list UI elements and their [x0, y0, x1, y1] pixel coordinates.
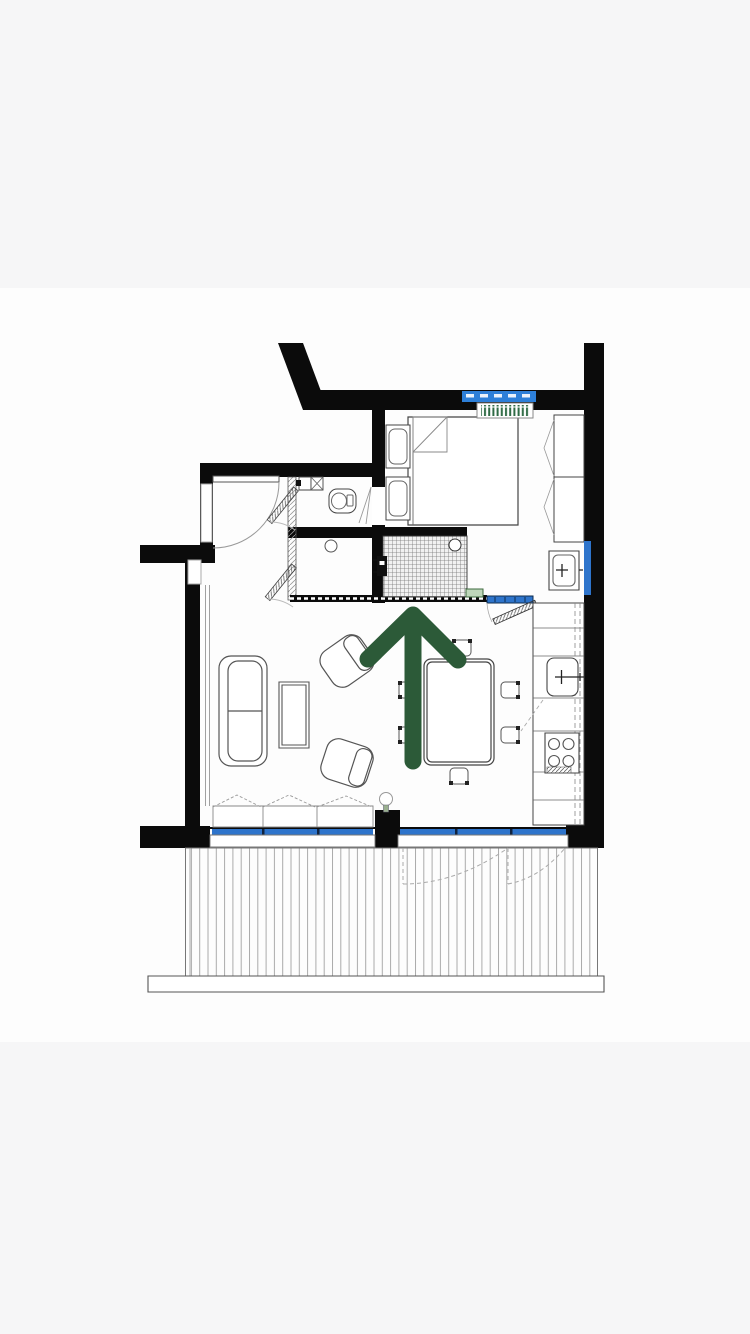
balcony-rim — [148, 976, 604, 992]
dimension-bar — [462, 391, 536, 402]
screenshot-root — [0, 0, 750, 1334]
nightstand-2 — [386, 477, 410, 520]
wall-corner-br — [566, 822, 604, 848]
floor-drain — [325, 540, 337, 552]
wc-door-opening — [372, 487, 385, 525]
wall-wc-divider — [288, 527, 385, 538]
coffee-table — [279, 682, 309, 748]
oven-handle — [547, 767, 571, 773]
shower-drain — [449, 539, 461, 551]
floor-plan-svg — [0, 0, 750, 1334]
bed — [408, 417, 518, 525]
nightstand-1 — [386, 425, 410, 468]
window-left — [212, 829, 373, 835]
wall-niche-1 — [201, 484, 212, 542]
window-right — [400, 829, 566, 835]
kitchen-counter — [533, 603, 584, 825]
wall-bed-tile — [385, 527, 467, 536]
wall-hall-top — [205, 463, 385, 477]
dining-chair — [501, 726, 520, 744]
wall-top — [310, 390, 604, 410]
wall-bottom-edge-right — [398, 827, 568, 829]
dining-table — [424, 659, 494, 765]
shower-mat — [466, 589, 483, 597]
dining-chair — [449, 768, 469, 785]
interior-window — [487, 596, 533, 603]
sofa — [219, 656, 267, 766]
corner-sink — [296, 477, 323, 490]
bedroom-window — [584, 541, 591, 595]
wall-block-bl — [140, 826, 210, 848]
wall-left-stub — [140, 545, 215, 563]
wall-right — [584, 343, 604, 848]
toilet — [329, 489, 356, 513]
window-sill — [213, 806, 373, 827]
dining-chair — [501, 681, 520, 699]
balcony-deck — [185, 848, 598, 976]
shower-tiles — [383, 536, 467, 597]
wall-left-main — [185, 563, 200, 828]
wall-pier — [375, 810, 400, 848]
cooktop — [545, 733, 579, 773]
wall-niche-2 — [188, 560, 201, 584]
radiator — [477, 403, 533, 418]
bedroom-washbasin — [549, 551, 583, 590]
